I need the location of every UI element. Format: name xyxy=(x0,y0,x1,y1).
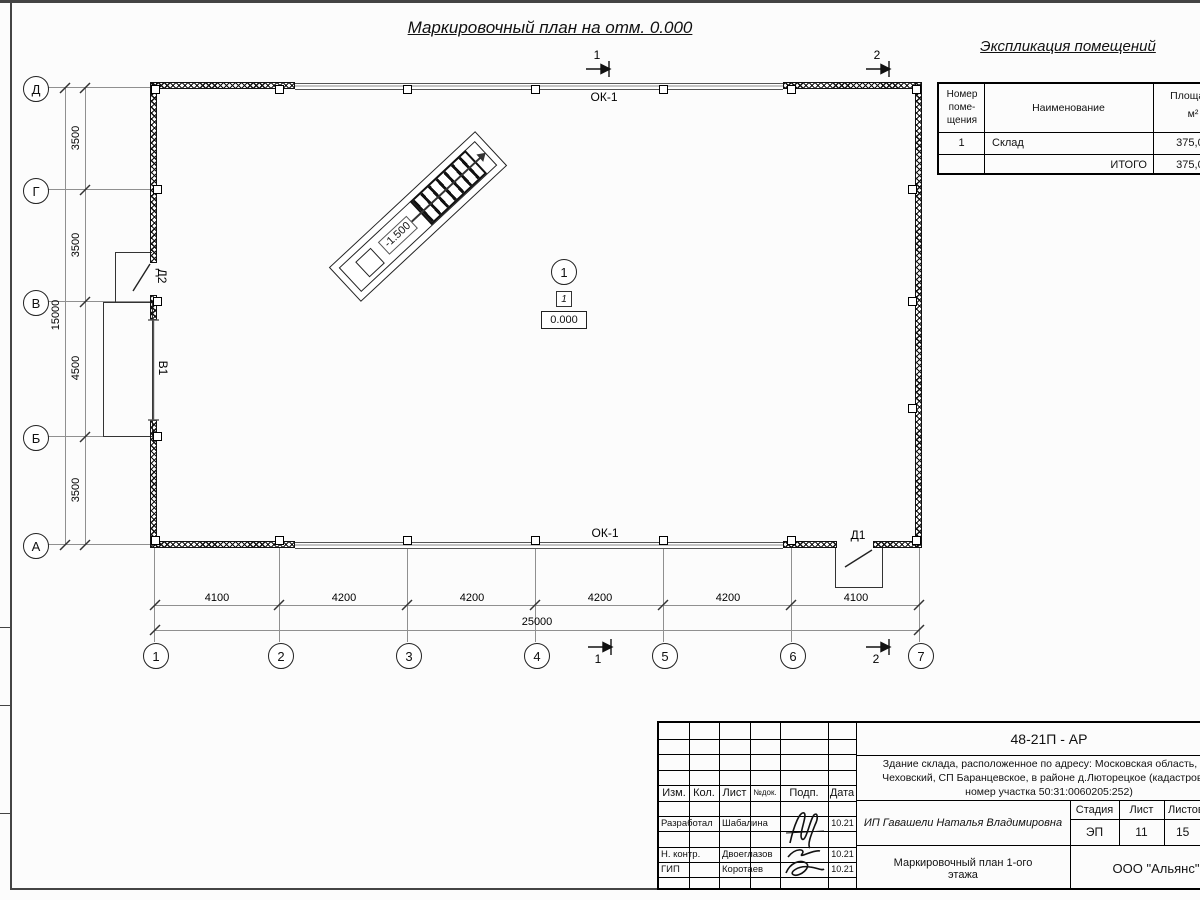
axis-number: 2 xyxy=(277,649,284,664)
wall-right xyxy=(915,82,922,548)
wall-top-left xyxy=(150,82,295,89)
window-label-top: ОК-1 xyxy=(580,90,628,104)
axis-number: 4 xyxy=(533,649,540,664)
explication-table: Номер поме- щения Наименование Площадь м… xyxy=(937,82,1200,175)
stamp-doc-number: 48-21П - АР xyxy=(856,723,1200,755)
loading-platform xyxy=(103,302,153,437)
dim-left-2: 3500 xyxy=(70,225,82,265)
explication-row-number: 1 xyxy=(939,132,984,154)
axis-letter: Д xyxy=(32,82,41,97)
axis-letter: А xyxy=(32,539,41,554)
axis-circle-a: А xyxy=(23,533,49,559)
column xyxy=(908,404,917,413)
column xyxy=(787,85,796,94)
axis-line-7 xyxy=(919,548,920,642)
dim-line-bottom-inner xyxy=(155,605,920,606)
floor-type-marker: 1 xyxy=(556,291,572,307)
column xyxy=(275,536,284,545)
stamp-col-podp: Подп. xyxy=(780,785,828,801)
section-mark-1-bottom: 1 xyxy=(590,652,606,666)
column xyxy=(659,536,668,545)
wall-bottom-left xyxy=(150,541,295,548)
description-line: Чеховский, СП Баранцевское, в районе д.Л… xyxy=(856,771,1200,785)
stamp-sheets-label: Листов xyxy=(1164,800,1200,819)
axis-circle-d: Д xyxy=(23,76,49,102)
stamp-company: ООО "Альянс" xyxy=(1070,845,1200,892)
explication-title-text: Экспликация помещений xyxy=(980,38,1156,55)
door1-label: Д1 xyxy=(845,528,871,542)
axis-number: 1 xyxy=(152,649,159,664)
dim-line-left-outer xyxy=(65,88,66,545)
stamp-name-gip: Коротаев xyxy=(722,862,780,877)
stamp-line xyxy=(659,801,856,802)
drawing-sheet: { "sheet": { "title": "Маркировочный пла… xyxy=(0,0,1200,900)
signature-ncontrol-gip xyxy=(780,845,828,879)
column xyxy=(531,536,540,545)
axis-circle-g: Г xyxy=(23,178,49,204)
level-marker: 0.000 xyxy=(541,311,587,329)
window-label-bottom: ОК-1 xyxy=(581,526,629,540)
axis-circle-5: 5 xyxy=(652,643,678,669)
sheet-margin-tick xyxy=(0,627,10,628)
wall-top-right xyxy=(783,82,922,89)
column xyxy=(787,536,796,545)
axis-line-3 xyxy=(407,548,408,642)
axis-line-d xyxy=(48,87,151,88)
dim-left-1: 3500 xyxy=(70,118,82,158)
explication-header-name: Наименование xyxy=(984,84,1153,132)
stamp-stage-value: ЭП xyxy=(1070,819,1119,845)
dim-bottom-total: 25000 xyxy=(513,616,561,628)
floor-type-number: 1 xyxy=(561,294,567,305)
area-header-line2: м² xyxy=(1153,108,1200,120)
stamp-role-developer: Разработал xyxy=(661,816,719,831)
door2-label: Д2 xyxy=(155,261,169,291)
dim-left-4: 3500 xyxy=(70,470,82,510)
stamp-sheet-value: 11 xyxy=(1119,819,1164,845)
stamp-line xyxy=(719,723,720,888)
explication-total-label: ИТОГО xyxy=(984,154,1147,177)
sheet-margin-tick xyxy=(0,705,10,706)
axis-circle-1: 1 xyxy=(143,643,169,669)
dim-left-total: 15000 xyxy=(50,291,62,339)
dim-bottom-3: 4200 xyxy=(448,592,496,604)
stamp-col-kol: Кол. xyxy=(689,785,719,801)
room-number-circle: 1 xyxy=(551,259,577,285)
title-block: Изм. Кол. Лист №док. Подп. Дата Разработ… xyxy=(657,721,1200,890)
axis-letter: В xyxy=(32,296,41,311)
area-header-line1: Площадь xyxy=(1153,90,1200,102)
axis-circle-v: В xyxy=(23,290,49,316)
axis-number: 5 xyxy=(661,649,668,664)
sheet-frame-left xyxy=(10,0,12,890)
stamp-col-list: Лист xyxy=(719,785,750,801)
stamp-line xyxy=(659,770,856,771)
column xyxy=(531,85,540,94)
dim-left-3: 4500 xyxy=(70,348,82,388)
room-number: 1 xyxy=(560,265,567,280)
stamp-sheet-label: Лист xyxy=(1119,800,1164,819)
column xyxy=(908,185,917,194)
stamp-date-ncontrol: 10.21 xyxy=(829,847,856,862)
explication-row-name: Склад xyxy=(992,132,1142,154)
drawing-name-text: Маркировочный план 1-ого этажа xyxy=(883,857,1043,881)
description-line: номер участка 50:31:0060205:252) xyxy=(856,785,1200,799)
dim-line-bottom-outer xyxy=(155,630,920,631)
column xyxy=(403,536,412,545)
stamp-stage-label: Стадия xyxy=(1070,800,1119,819)
ramp-pit: -1.500 xyxy=(329,131,507,302)
dim-bottom-2: 4200 xyxy=(320,592,368,604)
section-mark-2-bottom: 2 xyxy=(868,652,884,666)
door-leaves xyxy=(133,264,872,567)
column xyxy=(151,85,160,94)
wall-left-upper xyxy=(150,82,157,263)
axis-circle-7: 7 xyxy=(908,643,934,669)
dim-bottom-6: 4100 xyxy=(832,592,880,604)
axis-line-2 xyxy=(279,548,280,642)
column xyxy=(153,297,162,306)
axis-line-a xyxy=(48,544,151,545)
description-line: Здание склада, расположенное по адресу: … xyxy=(856,757,1200,771)
stamp-line xyxy=(659,739,856,740)
stamp-name-ncontrol: Двоеглазов xyxy=(722,847,780,862)
axis-circle-b: Б xyxy=(23,425,49,451)
dim-bottom-1: 4100 xyxy=(193,592,241,604)
axis-number: 7 xyxy=(917,649,924,664)
stamp-col-ndok: №док. xyxy=(750,785,780,801)
dim-line-left-inner xyxy=(85,88,86,545)
explication-title: Экспликация помещений xyxy=(940,38,1196,55)
column xyxy=(912,536,921,545)
section-mark-1-top: 1 xyxy=(589,48,605,62)
axis-letter: Г xyxy=(32,184,39,199)
explication-total-area: 375,00 xyxy=(1153,154,1200,177)
axis-number: 3 xyxy=(405,649,412,664)
drawing-title: Маркировочный план на отм. 0.000 xyxy=(300,18,800,38)
explication-header-area: Площадь м² xyxy=(1153,90,1200,120)
axis-letter: Б xyxy=(32,431,41,446)
door2-porch xyxy=(115,252,152,302)
stamp-col-izm: Изм. xyxy=(659,785,689,801)
column xyxy=(659,85,668,94)
dim-bottom-5: 4200 xyxy=(704,592,752,604)
stamp-description: Здание склада, расположенное по адресу: … xyxy=(856,757,1200,800)
stamp-date-gip: 10.21 xyxy=(829,862,856,877)
stamp-client: ИП Гавашели Наталья Владимировна xyxy=(856,800,1070,845)
axis-circle-4: 4 xyxy=(524,643,550,669)
stamp-line xyxy=(856,755,1200,756)
column xyxy=(403,85,412,94)
sheet-margin-tick xyxy=(0,813,10,814)
door1-porch xyxy=(835,548,883,588)
section-mark-2-top: 2 xyxy=(869,48,885,62)
column xyxy=(275,85,284,94)
drawing-title-text: Маркировочный план на отм. 0.000 xyxy=(408,18,693,37)
dim-bottom-4: 4200 xyxy=(576,592,624,604)
column xyxy=(912,85,921,94)
stamp-name-developer: Шабалина xyxy=(722,816,780,831)
level-value: 0.000 xyxy=(550,314,578,326)
axis-circle-2: 2 xyxy=(268,643,294,669)
column xyxy=(153,185,162,194)
axis-circle-3: 3 xyxy=(396,643,422,669)
explication-row-area: 375,00 xyxy=(1153,132,1200,154)
column xyxy=(153,432,162,441)
column xyxy=(151,536,160,545)
signature-developer xyxy=(780,805,828,850)
stamp-date-developer: 10.21 xyxy=(829,816,856,831)
stamp-role-gip: ГИП xyxy=(661,862,719,877)
axis-line-g xyxy=(48,189,151,190)
axis-number: 6 xyxy=(789,649,796,664)
axis-line-5 xyxy=(663,548,664,642)
column xyxy=(908,297,917,306)
axis-line-1 xyxy=(154,548,155,642)
stamp-line xyxy=(659,754,856,755)
gate-label: В1 xyxy=(156,353,170,383)
stamp-role-ncontrol: Н. контр. xyxy=(661,847,719,862)
stamp-drawing-name: Маркировочный план 1-ого этажа xyxy=(856,845,1070,892)
axis-circle-6: 6 xyxy=(780,643,806,669)
sheet-frame-top xyxy=(0,0,1200,3)
axis-line-6 xyxy=(791,548,792,642)
explication-header-number: Номер поме- щения xyxy=(940,88,984,127)
stamp-sheets-value: 15 xyxy=(1164,819,1200,845)
stamp-col-data: Дата xyxy=(828,785,856,801)
